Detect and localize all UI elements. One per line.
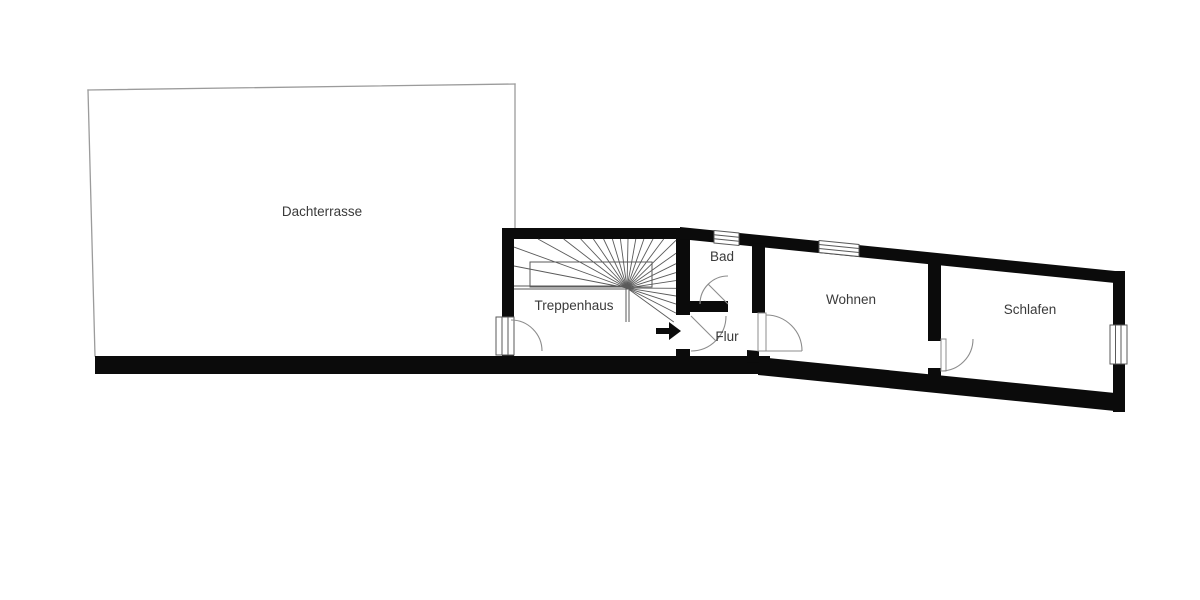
- door-wohnen-arc: [766, 315, 802, 351]
- door-entry-frame: [496, 317, 514, 355]
- label-wohnen: Wohnen: [826, 292, 876, 307]
- stair-tread-line: [564, 239, 627, 288]
- label-dachterrasse: Dachterrasse: [282, 204, 362, 219]
- wall-bad-flur-divider: [690, 301, 728, 312]
- door-wohnen-leaf-closed: [758, 313, 766, 351]
- wall-treppenhaus-right-upper: [676, 228, 690, 315]
- entrance-arrow-icon: [656, 322, 681, 340]
- label-schlafen: Schlafen: [1004, 302, 1057, 317]
- wall-wohnen-left-stub: [747, 350, 759, 363]
- label-bad: Bad: [710, 249, 734, 264]
- stair-tread-line: [593, 239, 627, 288]
- stair-tread-line: [538, 239, 627, 288]
- walls: [95, 227, 1125, 412]
- terrace-edge-left: [88, 90, 95, 356]
- wall-treppenhaus-left-upper: [502, 228, 514, 318]
- terrace-edge-top: [88, 84, 515, 90]
- wall-wing-top: [680, 227, 1125, 284]
- door-schlafen-leaf: [941, 339, 946, 371]
- wall-wohnen-schlafen-divider: [928, 262, 941, 341]
- label-flur: Flur: [715, 329, 739, 344]
- wall-wohnen-left-upper: [752, 243, 765, 313]
- wall-bottom-main: [95, 356, 770, 374]
- terrace-outline: [88, 84, 515, 356]
- wall-treppenhaus-right-stub: [676, 349, 690, 357]
- door-flur-leaf: [691, 316, 716, 341]
- windows: [714, 231, 1127, 365]
- window-wohnen: [819, 241, 859, 257]
- stair-tread-line: [627, 239, 628, 288]
- stair-tread-line: [627, 288, 674, 322]
- wall-treppenhaus-top: [502, 228, 690, 239]
- label-treppenhaus: Treppenhaus: [534, 298, 613, 313]
- window-schlafen: [1110, 325, 1127, 364]
- entrance-arrow-shape: [656, 322, 681, 340]
- floorplan-canvas: Dachterrasse Treppenhaus Bad Flur Wohnen…: [0, 0, 1200, 600]
- window-bad: [714, 231, 739, 246]
- floorplan-svg: Dachterrasse Treppenhaus Bad Flur Wohnen…: [0, 0, 1200, 600]
- stair-tread-line: [627, 288, 676, 304]
- stair-tread-line: [627, 239, 664, 288]
- door-entry-arc: [511, 320, 542, 351]
- wall-wohnen-schlafen-stub: [928, 368, 941, 377]
- stair-tread-line: [514, 266, 627, 288]
